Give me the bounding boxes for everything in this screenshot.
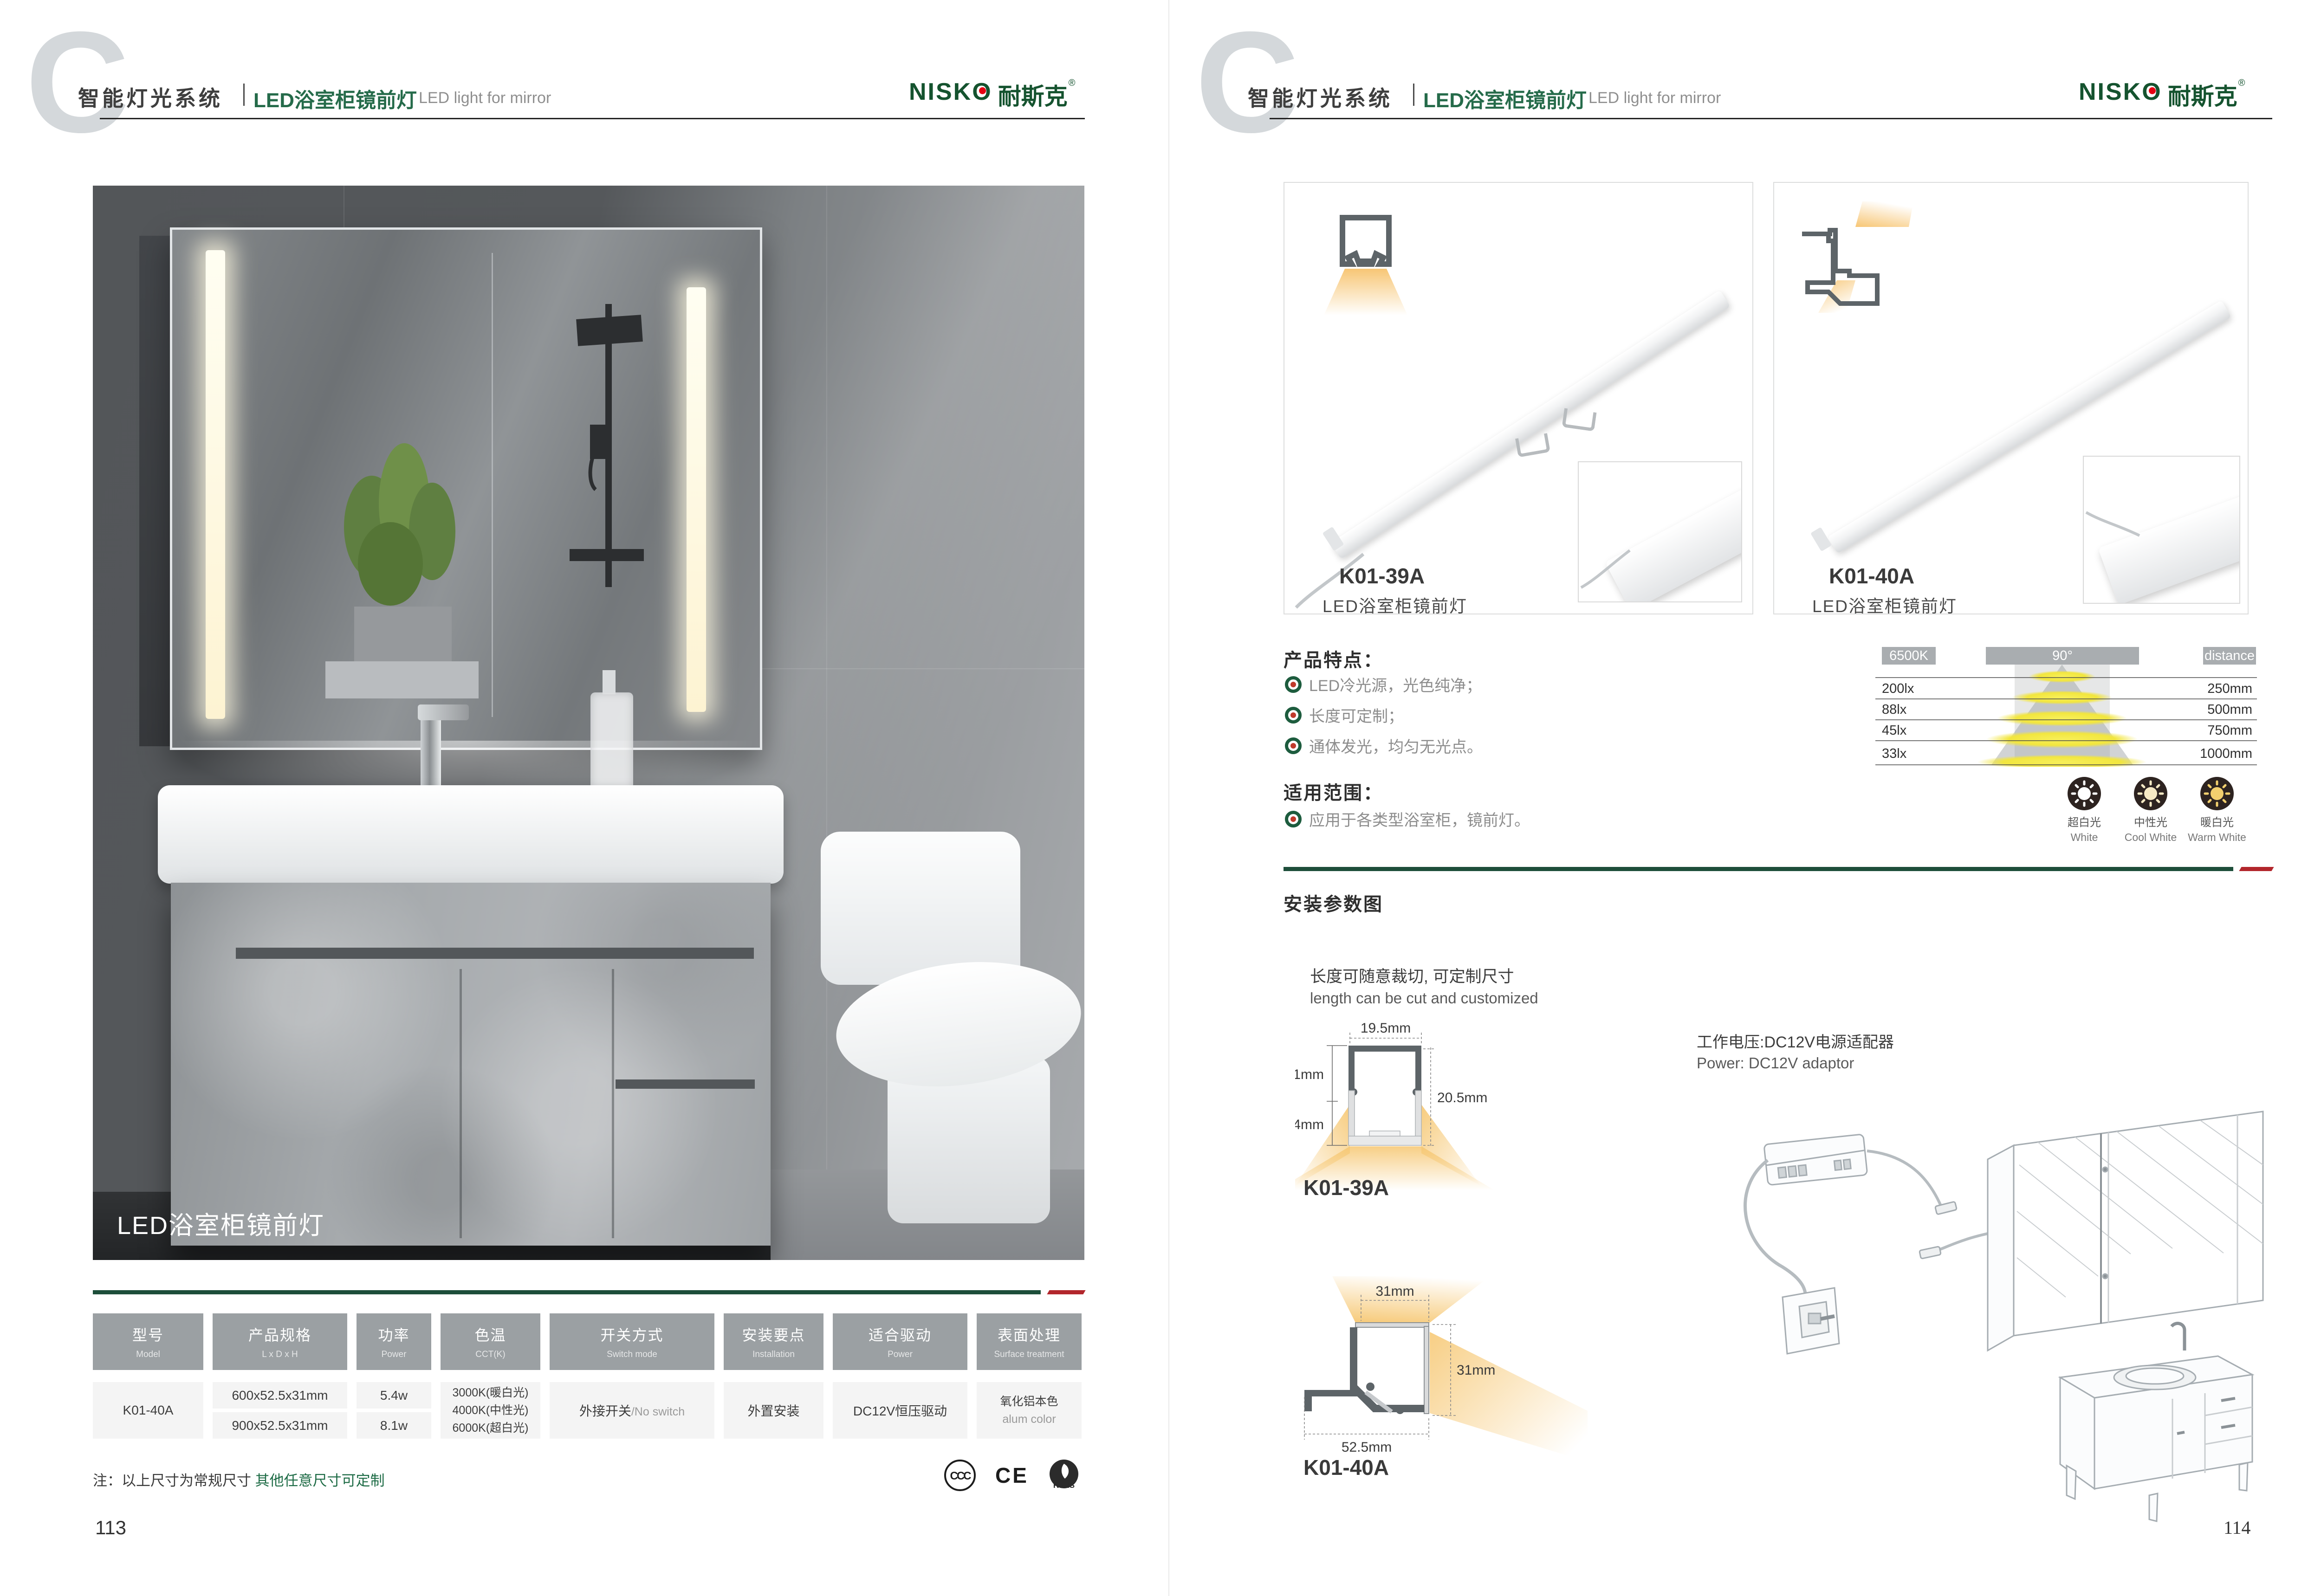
product-name: LED浴室柜镜前灯 [1812,592,1957,614]
feature-item: LED冷光源，光色纯净； [1285,673,1482,696]
feature-text: 通体发光，均匀无光点。 [1309,734,1483,757]
install-title: 安装参数图 [1284,889,1383,916]
cell-power-1: 5.4w [357,1382,431,1409]
vanity-door-seam [460,969,462,1238]
cell-model: K01-40A [93,1382,203,1439]
dim-top: 31mm [1375,1284,1414,1299]
distance-value: 500mm [2207,702,2252,717]
header-divider-left [243,84,245,106]
section-drawing-k01-39a: 19.5mm 9.1mm 11.4mm 20.5mm [1295,1014,1555,1190]
product-model: K01-40A [1829,563,1914,588]
bullet-icon [1285,707,1302,724]
vanity-top-slot [236,948,754,959]
col-header-en: CCT(K) [475,1350,505,1360]
col-header-en: Surface treatment [994,1350,1064,1360]
section-drawing-k01-40a: 31mm 31mm 52.5mm [1290,1276,1588,1462]
col-header-cn: 功率 [378,1324,409,1345]
cct-line: 6000K(超白光) [453,1419,529,1437]
cell-driver: DC12V恒压驱动 [833,1382,967,1439]
cell-installation: 外置安装 [724,1382,823,1439]
logo-registered-mark: ® [2238,78,2245,89]
col-header: 型号 Model [93,1313,203,1370]
profile-section-icon-k01-40a [1793,201,1913,313]
detail-inset-k01-40a [2083,456,2240,604]
bathroom-photo: LED浴室柜镜前灯 [93,186,1084,1260]
cct-option-warm-white: 暖白光 Warm White [2188,777,2246,843]
size-note: 注：以上尺寸为常规尺寸 其他任意尺寸可定制 [93,1469,385,1490]
dim-upper: 9.1mm [1295,1067,1324,1082]
detail-wire [1579,541,1634,597]
lux-value: 200lx [1882,681,1914,696]
detail-inset-k01-39a [1578,461,1742,602]
col-header: 色温 CCT(K) [441,1313,540,1370]
col-header-cn: 型号 [132,1324,164,1345]
spec-table: 型号 Model K01-40A 产品规格 L x D x H 600x52.5… [93,1313,1084,1439]
distance-value: 250mm [2207,681,2252,696]
cell-size-1: 600x52.5x31mm [213,1382,347,1409]
header-product-title-right: LED浴室柜镜前灯 [1423,84,1587,113]
col-header-cn: 适合驱动 [869,1324,932,1345]
mirror-reflection-art [172,230,760,748]
svg-text:暖白光: 暖白光 [2200,816,2234,829]
mirror-cabinet-side [139,236,171,746]
col-header: 适合驱动 Power [833,1313,967,1370]
nisko-logo-left: NISKO 耐斯克 ® [909,78,1075,111]
table-col-cct: 色温 CCT(K) 3000K(暖白光) 4000K(中性光) 6000K(超白… [441,1313,540,1439]
col-header-cn: 表面处理 [998,1324,1061,1345]
col-header-en: Switch mode [607,1350,657,1360]
power-adaptor [1764,1134,1867,1185]
col-header: 产品规格 L x D x H [213,1313,347,1370]
logo-red-dot-icon [2149,87,2156,94]
wall-socket [1783,1288,1839,1354]
feature-item: 长度可定制； [1285,704,1404,726]
col-header: 表面处理 Surface treatment [977,1313,1082,1370]
table-col-installation: 安装要点 Installation 外置安装 [724,1313,823,1439]
separator-green-left [93,1290,1041,1294]
col-header: 功率 Power [357,1313,431,1370]
dim-height: 20.5mm [1437,1090,1487,1105]
ce-icon: CE [992,1459,1031,1492]
vanity-drawer-seam [612,969,614,1238]
svg-text:CCC: CCC [950,1470,972,1482]
header-section-title-left: 智能灯光系统 [78,82,223,112]
certification-icons: CCC CE RoHS [943,1457,1081,1493]
col-header-en: Power [888,1350,913,1360]
feature-item: 通体发光，均匀无光点。 [1285,734,1483,757]
page-divider [1168,0,1169,1596]
nisko-logo-right: NISKO 耐斯克 ® [2079,78,2245,111]
separator-red-left [1047,1290,1085,1294]
angle-header: 90° [2052,648,2073,663]
cct-line: 3000K(暖白光) [453,1384,529,1402]
lux-value: 45lx [1882,723,1907,738]
mirror-cabinet [170,227,762,750]
product-card-k01-39a: K01-39A LED浴室柜镜前灯 [1284,182,1753,614]
power-note-cn: 工作电压:DC12V电源适配器 [1697,1029,1894,1052]
distance-header: distance [2204,648,2255,663]
page-number-right: 114 [2224,1517,2251,1538]
detail-wire [2084,508,2144,568]
col-header-en: Model [136,1350,160,1360]
col-header-en: Installation [752,1350,795,1360]
surface-cn: 氧化铝本色 [1000,1393,1058,1410]
cut-note-cn: 长度可随意裁切, 可定制尺寸 [1310,963,1514,987]
separator-green-right [1284,867,2233,871]
lux-value: 33lx [1882,746,1907,761]
section-label-k01-40a: K01-40A [1303,1455,1389,1480]
mirror-cabinet-drawing [1988,1111,2263,1350]
logo-text-en: NISKO [2079,78,2162,106]
header-rule-left [100,118,1085,119]
header-product-title-left: LED浴室柜镜前灯 [253,84,417,113]
dim-width: 19.5mm [1361,1021,1411,1036]
application-item: 应用于各类型浴室柜，镜前灯。 [1285,808,1530,830]
installation-illustration [1713,1091,2275,1536]
wash-basin [158,785,784,884]
tile-line [757,668,1084,669]
faucet [421,709,441,793]
vanity-drawing [2060,1324,2252,1521]
dim-bottom: 52.5mm [1342,1440,1392,1455]
product-card-k01-40a: K01-40A LED浴室柜镜前灯 [1773,182,2249,614]
bullet-icon [1285,737,1302,754]
svg-text:中性光: 中性光 [2134,816,2167,829]
svg-text:CE: CE [995,1463,1029,1487]
bullet-icon [1285,811,1302,827]
tile-line [826,186,827,1260]
cell-power-2: 8.1w [357,1412,431,1439]
header-rule-right [1270,118,2272,119]
col-header: 安装要点 Installation [724,1313,823,1370]
cct-options: 超白光 White 中性光 Cool White 暖白光 [2055,774,2264,848]
dim-side: 31mm [1457,1363,1495,1378]
table-col-switch: 开关方式 Switch mode 外接开关/No switch [550,1313,714,1439]
cut-note-en: length can be cut and customized [1310,989,1538,1007]
col-header-en: L x D x H [262,1350,298,1360]
logo-text-cn: 耐斯克 [998,78,1068,111]
catalog-spread: C 智能灯光系统 LED浴室柜镜前灯 LED light for mirror … [0,0,2321,1596]
feature-text: 长度可定制； [1309,704,1404,726]
col-header-cn: 开关方式 [600,1324,663,1345]
header-section-title-right: 智能灯光系统 [1248,82,1393,112]
col-header-cn: 安装要点 [742,1324,805,1345]
header-divider-right [1413,84,1414,106]
lux-value: 88lx [1882,702,1907,717]
photo-caption: LED浴室柜镜前灯 [117,1205,324,1241]
application-text: 应用于各类型浴室柜，镜前灯。 [1309,808,1530,830]
separator-red-right [2239,867,2274,871]
distance-value: 1000mm [2200,746,2252,761]
power-note-en: Power: DC12V adaptor [1697,1054,1854,1072]
svg-text:Warm White: Warm White [2188,831,2246,843]
table-col-size: 产品规格 L x D x H 600x52.5x31mm 900x52.5x31… [213,1313,347,1439]
logo-text-en: NISKO [909,78,992,106]
table-col-surface: 表面处理 Surface treatment 氧化铝本色 alum color [977,1313,1082,1439]
col-header-cn: 产品规格 [248,1324,311,1345]
faucet-spout [418,704,469,720]
cct-option-cool-white: 中性光 Cool White [2125,777,2177,843]
rohs-icon: RoHS [1047,1457,1081,1493]
application-title: 适用范围： [1284,778,1383,805]
col-header: 开关方式 Switch mode [550,1313,714,1370]
cct-line: 4000K(中性光) [453,1402,529,1419]
product-model: K01-39A [1339,563,1425,588]
surface-en: alum color [1002,1410,1056,1428]
svg-text:超白光: 超白光 [2068,816,2101,829]
cct-header: 6500K [1889,648,1929,663]
vanity-drawer-slot [616,1079,755,1089]
vanity-cabinet [171,883,771,1246]
header-product-title-en-right: LED light for mirror [1588,89,1721,107]
svg-text:Cool White: Cool White [2125,831,2177,843]
svg-text:White: White [2071,831,2098,843]
section-label-k01-39a: K01-39A [1303,1175,1389,1200]
table-col-driver: 适合驱动 Power DC12V恒压驱动 [833,1313,967,1439]
page-number-left: 113 [95,1517,126,1539]
photometric-chart: 6500K 90° distance 200lx 88lx 45lx 33lx … [1875,645,2257,767]
soap-bottle-pump [603,670,616,694]
feature-text: LED冷光源，光色纯净； [1309,673,1482,696]
note-custom-size: 其他任意尺寸可定制 [255,1473,385,1489]
col-header-en: Power [382,1350,407,1360]
table-col-model: 型号 Model K01-40A [93,1313,203,1439]
features-title: 产品特点： [1284,645,1383,672]
table-col-power: 功率 Power 5.4w 8.1w [357,1313,431,1439]
col-header-cn: 色温 [474,1324,506,1345]
svg-text:RoHS: RoHS [1053,1481,1075,1490]
cell-size-2: 900x52.5x31mm [213,1412,347,1439]
mounting-clip-icon [1562,408,1596,431]
logo-red-dot-icon [979,87,986,94]
header-product-title-en-left: LED light for mirror [419,89,551,107]
logo-registered-mark: ® [1069,78,1076,89]
soap-bottle [590,692,633,791]
dim-lower: 11.4mm [1295,1117,1324,1132]
cell-cct: 3000K(暖白光) 4000K(中性光) 6000K(超白光) [441,1382,540,1439]
cct-option-white: 超白光 White [2068,777,2101,843]
profile-section-icon-k01-39a [1322,208,1410,315]
ccc-icon: CCC [943,1459,977,1492]
distance-value: 750mm [2207,723,2252,738]
product-name: LED浴室柜镜前灯 [1323,592,1467,614]
cell-surface: 氧化铝本色 alum color [977,1382,1082,1439]
cell-switch: 外接开关/No switch [550,1382,714,1439]
bullet-icon [1285,676,1302,693]
logo-text-cn: 耐斯克 [2168,78,2237,111]
